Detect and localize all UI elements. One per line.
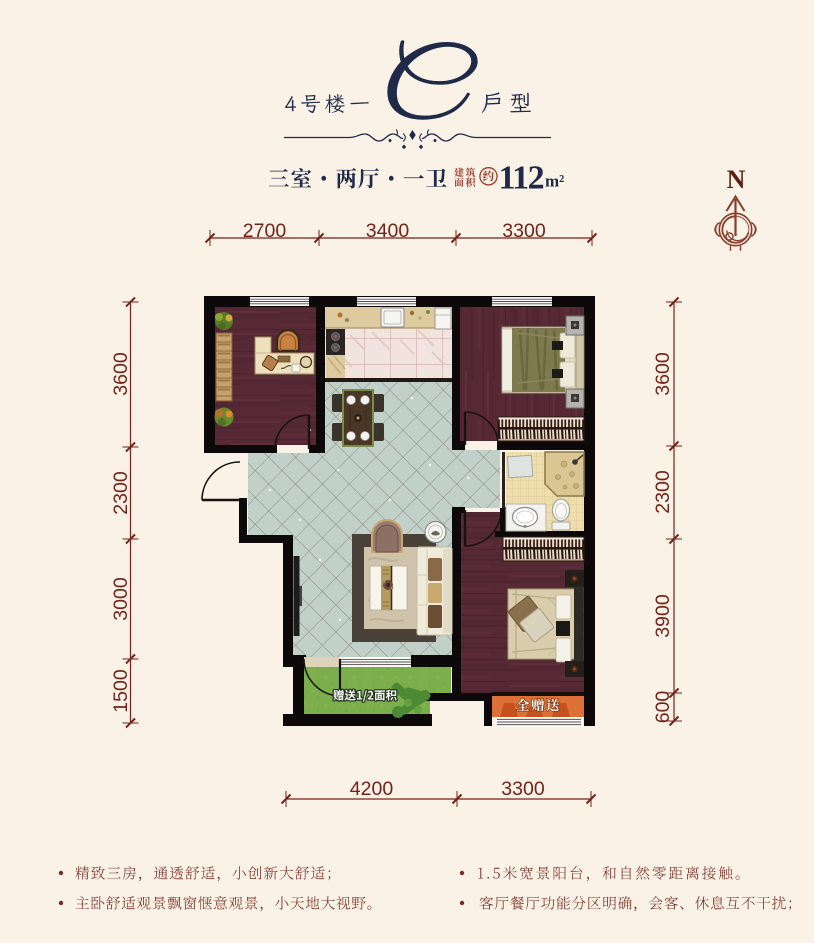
svg-text:2700: 2700 xyxy=(243,220,287,242)
svg-text:3600: 3600 xyxy=(652,352,674,396)
svg-text:2300: 2300 xyxy=(110,471,132,515)
svg-text:N: N xyxy=(727,165,746,194)
svg-text:3900: 3900 xyxy=(652,594,674,638)
svg-text:m²: m² xyxy=(545,172,564,191)
svg-text:4200: 4200 xyxy=(350,778,394,800)
svg-text:3400: 3400 xyxy=(366,220,410,242)
svg-text:112: 112 xyxy=(499,160,544,197)
svg-text:1500: 1500 xyxy=(110,669,132,713)
svg-text:3300: 3300 xyxy=(502,220,546,242)
svg-text:3300: 3300 xyxy=(501,778,545,800)
svg-text:3600: 3600 xyxy=(110,352,132,396)
svg-text:3000: 3000 xyxy=(110,577,132,621)
svg-text:600: 600 xyxy=(652,691,674,724)
svg-text:2300: 2300 xyxy=(652,470,674,514)
